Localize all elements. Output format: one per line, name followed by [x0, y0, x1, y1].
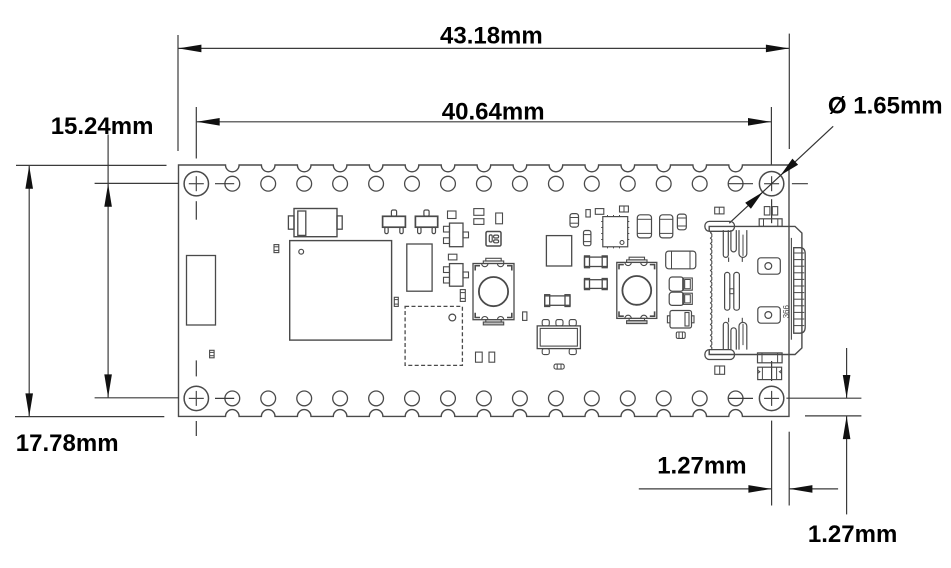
- svg-text:15.24mm: 15.24mm: [51, 113, 154, 140]
- svg-text:40.64mm: 40.64mm: [442, 98, 545, 125]
- svg-text:Ø 1.65mm: Ø 1.65mm: [828, 93, 943, 120]
- svg-text:1.27mm: 1.27mm: [808, 521, 897, 548]
- svg-text:366: 366: [782, 305, 791, 319]
- svg-text:1.27mm: 1.27mm: [657, 453, 746, 480]
- svg-text:17.78mm: 17.78mm: [16, 430, 119, 457]
- svg-text:43.18mm: 43.18mm: [440, 22, 543, 49]
